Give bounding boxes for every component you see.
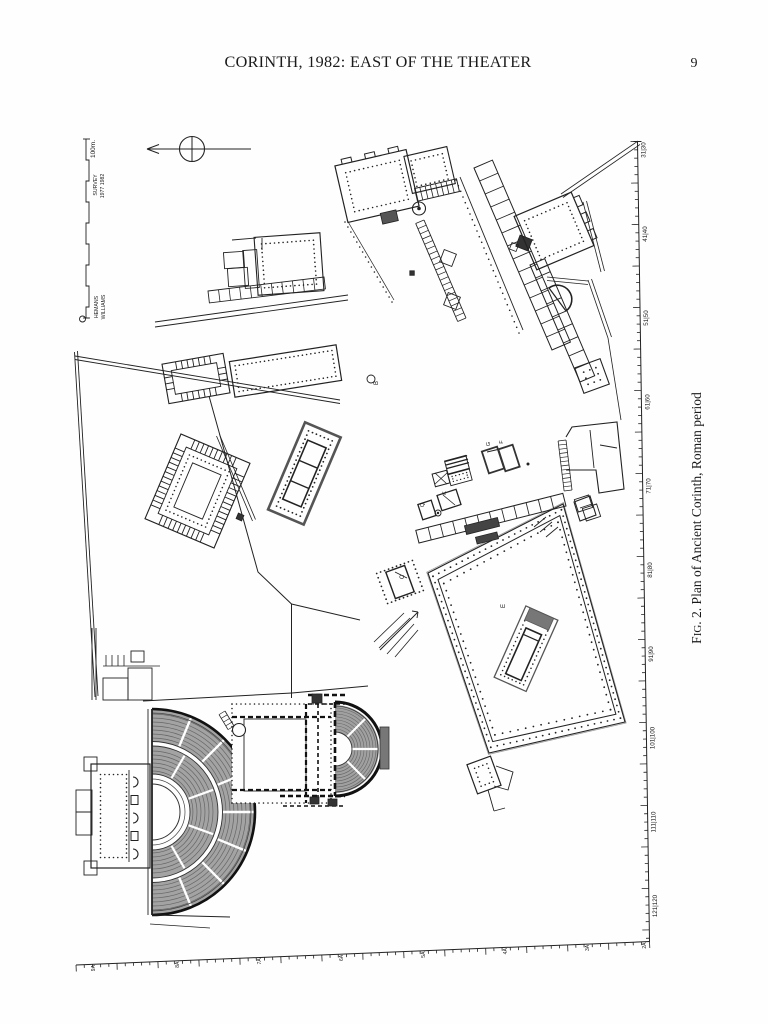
svg-text:HEMANS: HEMANS [94, 295, 100, 318]
svg-text:7A: 7A [257, 958, 263, 965]
svg-text:31|30: 31|30 [641, 142, 648, 158]
svg-text:2A: 2A [642, 942, 648, 949]
svg-text:9A: 9A [91, 964, 97, 971]
svg-text:G: G [486, 442, 492, 446]
svg-text:71|70: 71|70 [646, 478, 653, 494]
svg-text:91|90: 91|90 [648, 646, 655, 662]
svg-text:1977 1982: 1977 1982 [100, 174, 106, 199]
svg-text:B: B [374, 381, 380, 385]
svg-text:FIG. 2. Plan of Ancient Corint: FIG. 2. Plan of Ancient Corinth, Roman p… [689, 392, 704, 644]
svg-text:Q: Q [420, 502, 426, 507]
svg-text:100m.: 100m. [90, 140, 97, 158]
svg-text:C: C [400, 574, 406, 579]
svg-text:51|50: 51|50 [643, 310, 650, 326]
svg-text:CORINTH, 1982: EAST OF THE THE: CORINTH, 1982: EAST OF THE THEATER [225, 53, 532, 71]
svg-text:E: E [501, 604, 507, 608]
svg-text:8A: 8A [175, 961, 181, 968]
svg-text:61|60: 61|60 [644, 394, 651, 410]
svg-text:81|80: 81|80 [647, 562, 654, 578]
svg-text:111|110: 111|110 [651, 811, 658, 832]
svg-text:3A: 3A [585, 944, 591, 951]
svg-text:K: K [442, 491, 448, 495]
svg-text:5A: 5A [421, 951, 427, 958]
svg-text:6A: 6A [339, 954, 345, 961]
svg-text:9: 9 [691, 56, 698, 71]
svg-text:121|120: 121|120 [652, 894, 659, 917]
svg-text:101|100: 101|100 [649, 726, 656, 749]
svg-text:WILLIAMS: WILLIAMS [101, 294, 107, 319]
svg-text:4A: 4A [503, 948, 509, 955]
svg-text:41|40: 41|40 [642, 226, 649, 242]
svg-text:SURVEY: SURVEY [93, 174, 99, 196]
